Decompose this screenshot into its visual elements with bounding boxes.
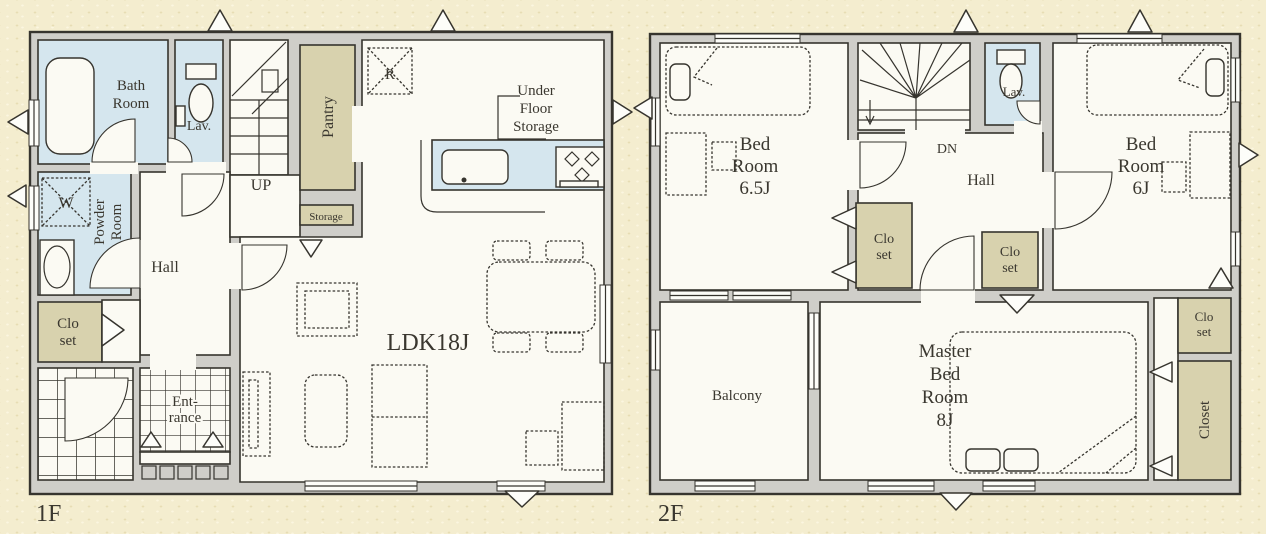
label-closet-tall: Closet	[1197, 400, 1213, 439]
label-washer: W	[58, 195, 74, 212]
kitchen-sink	[442, 150, 508, 184]
label-entrance: Ent-rance	[169, 394, 202, 426]
label-lav-1f: Lav.	[187, 119, 211, 134]
label-ldk: LDK18J	[387, 330, 470, 356]
label-closet-b: Closet	[1000, 245, 1020, 276]
toilet-1f	[186, 64, 216, 122]
opening-stairs-hall	[905, 126, 965, 137]
room-closet-b	[982, 232, 1038, 288]
label-powder-room: PowderRoom	[92, 199, 125, 245]
label-dn: DN	[937, 142, 957, 157]
floorplan-canvas: BathRoom Lav. UP Pantry R UnderFloorStor…	[0, 0, 1266, 534]
closet-access-strip	[1154, 298, 1178, 480]
opening-bedroom6	[1039, 172, 1057, 228]
opening-bedroom65	[844, 140, 862, 190]
opening-lav-hall	[166, 162, 226, 174]
label-fridge: R	[385, 67, 395, 83]
label-hall-1f: Hall	[151, 259, 179, 276]
stove	[556, 147, 604, 187]
label-closet-1f: Closet	[57, 316, 79, 349]
label-storage: Storage	[309, 211, 343, 223]
label-closet-a: Closet	[874, 232, 894, 263]
opening-hall-ldk	[228, 243, 242, 289]
label-lav-2f: Lav.	[1003, 84, 1026, 99]
label-up: UP	[251, 177, 272, 194]
label-floor-2f: 2F	[658, 501, 683, 527]
floor-1f-plan: BathRoom Lav. UP Pantry R UnderFloorStor…	[8, 10, 632, 527]
lav-side-unit	[176, 106, 185, 126]
bathtub	[46, 58, 94, 154]
room-stairs-2f	[858, 43, 970, 130]
opening-entrance-hall	[150, 353, 196, 370]
opening-pantry-ldk	[352, 106, 366, 162]
entrance-step-strip	[140, 452, 230, 464]
label-pantry: Pantry	[320, 96, 337, 138]
label-balcony: Balcony	[712, 388, 762, 404]
room-closet-1f	[38, 302, 102, 362]
floor-2f-plan: BedRoom6.5J DN Lav. Hall BedRoom6J Close…	[634, 10, 1258, 527]
label-hall-2f: Hall	[967, 172, 995, 189]
label-closet-c: Closet	[1195, 309, 1214, 339]
opening-bath-powder	[90, 162, 138, 174]
label-floor-1f: 1F	[36, 501, 61, 527]
powder-vanity	[40, 240, 74, 295]
